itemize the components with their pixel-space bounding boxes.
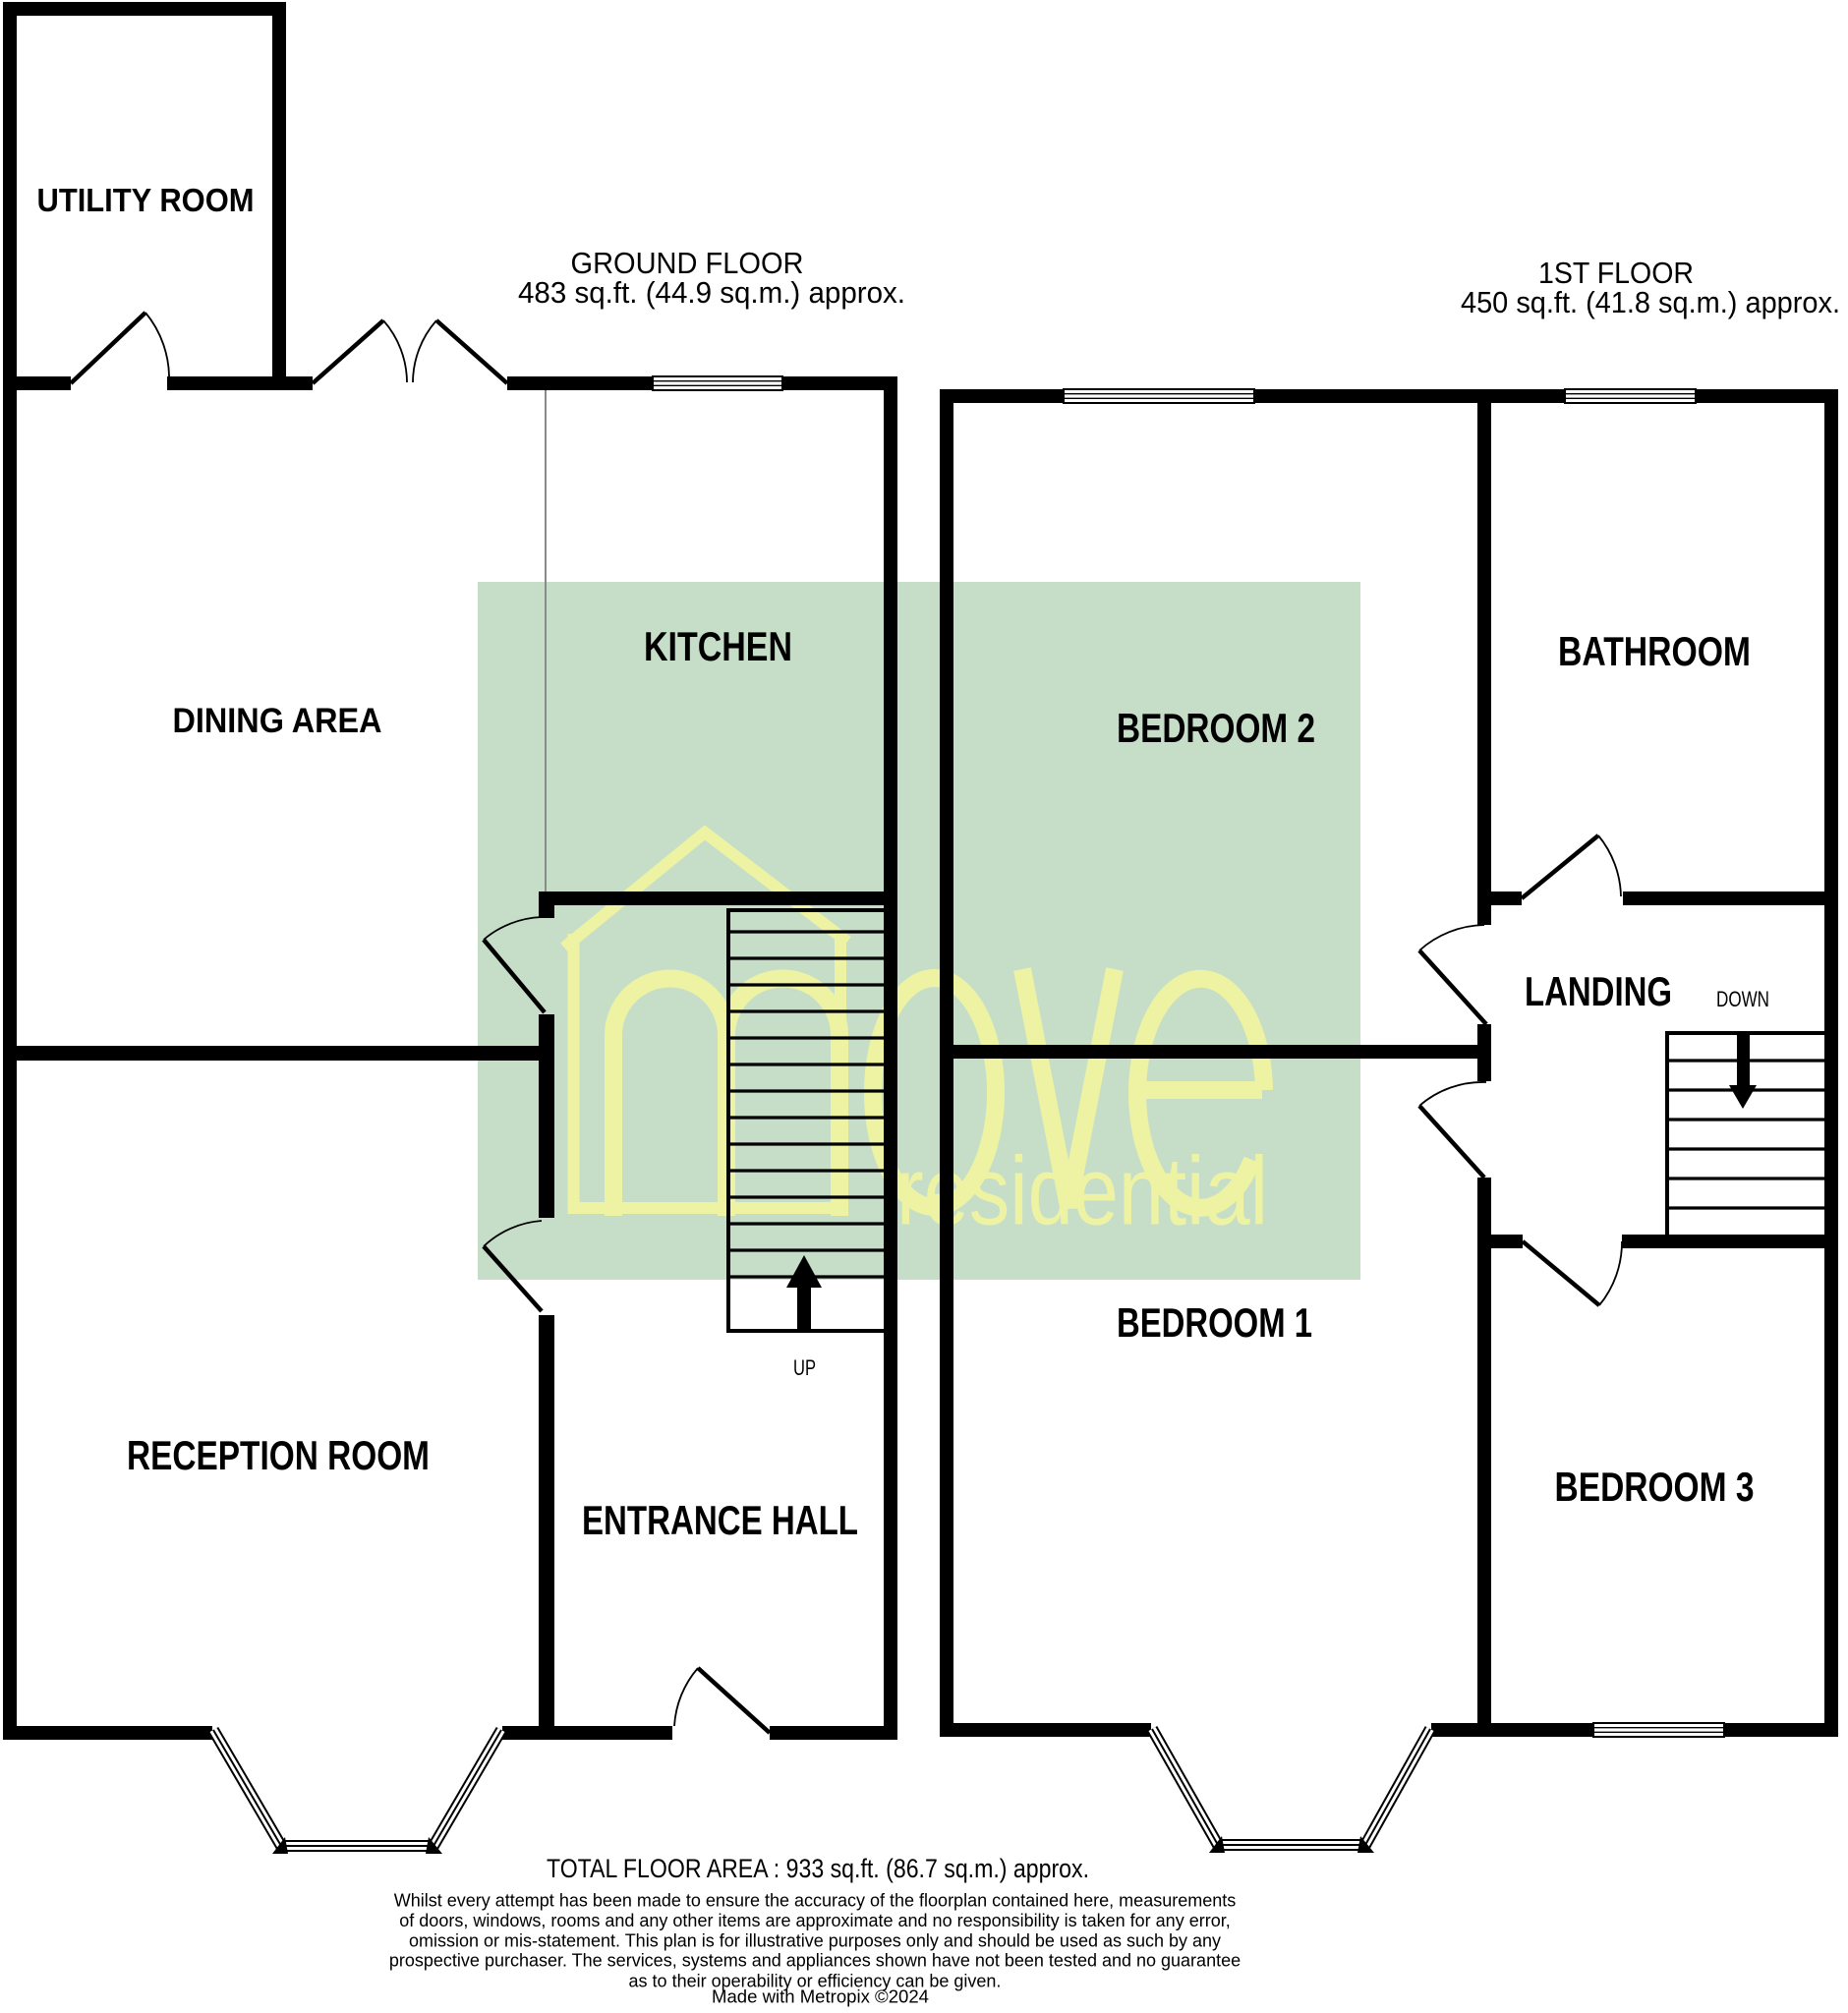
svg-text:BATHROOM: BATHROOM xyxy=(1558,628,1751,674)
svg-text:ENTRANCE HALL: ENTRANCE HALL xyxy=(582,1497,858,1543)
svg-text:Made with Metropix ©2024: Made with Metropix ©2024 xyxy=(712,1987,929,2007)
svg-text:BEDROOM 3: BEDROOM 3 xyxy=(1555,1464,1755,1510)
svg-text:KITCHEN: KITCHEN xyxy=(644,623,792,669)
svg-text:UTILITY ROOM: UTILITY ROOM xyxy=(37,182,255,218)
svg-text:TOTAL FLOOR AREA : 933 sq.ft.: TOTAL FLOOR AREA : 933 sq.ft. (86.7 sq.m… xyxy=(547,1854,1089,1883)
svg-text:DINING AREA: DINING AREA xyxy=(173,702,382,740)
svg-text:RECEPTION ROOM: RECEPTION ROOM xyxy=(127,1432,430,1478)
svg-text:UP: UP xyxy=(793,1355,816,1380)
svg-text:DOWN: DOWN xyxy=(1716,987,1769,1011)
svg-text:BEDROOM 1: BEDROOM 1 xyxy=(1117,1299,1312,1346)
svg-text:omission or mis-statement. Thi: omission or mis-statement. This plan is … xyxy=(409,1931,1221,1951)
svg-text:of doors, windows, rooms and a: of doors, windows, rooms and any other i… xyxy=(399,1911,1230,1930)
svg-text:483 sq.ft. (44.9 sq.m.) approx: 483 sq.ft. (44.9 sq.m.) approx. xyxy=(518,275,905,310)
svg-text:Whilst every attempt has been: Whilst every attempt has been made to en… xyxy=(394,1891,1236,1911)
svg-text:LANDING: LANDING xyxy=(1525,968,1672,1014)
svg-text:prospective purchaser. The ser: prospective purchaser. The services, sys… xyxy=(389,1951,1241,1971)
svg-text:BEDROOM 2: BEDROOM 2 xyxy=(1117,705,1315,751)
svg-text:450 sq.ft. (41.8 sq.m.) approx: 450 sq.ft. (41.8 sq.m.) approx. xyxy=(1461,285,1840,319)
